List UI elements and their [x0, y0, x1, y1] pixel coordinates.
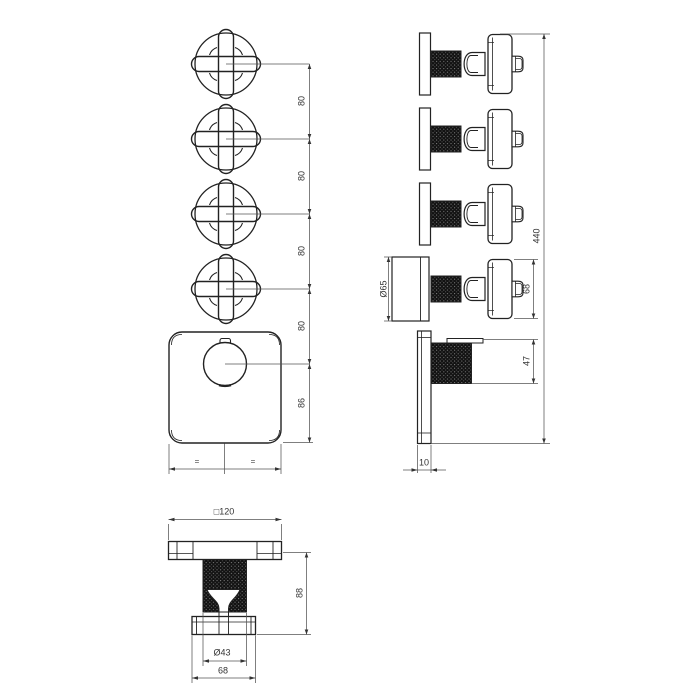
- dim-spacing-2: 80: [298, 171, 307, 181]
- cross-handle-3-side: [431, 185, 523, 244]
- dim-handle-height: 68: [523, 284, 532, 294]
- dim-plate-size: □120: [214, 508, 234, 517]
- technical-drawing-canvas: 80 80 80 80 86 = = Ø65 68 47 440 10 □120…: [0, 0, 700, 700]
- cross-handle-bottom: [192, 612, 256, 635]
- dim-knob-height: 47: [523, 356, 532, 366]
- dim-center-to-bottom: 86: [298, 398, 307, 408]
- cross-handle-1-side: [431, 35, 523, 94]
- bottom-view: [169, 542, 282, 635]
- knurled-hub-bottom: [203, 560, 247, 613]
- dim-rosette-diameter: Ø65: [380, 280, 389, 297]
- rosette-1-side: [420, 33, 431, 95]
- thermostat-knob-side: [431, 339, 483, 384]
- dim-depth: 88: [296, 588, 305, 598]
- cross-handle-2-side: [431, 110, 523, 169]
- dim-spacing-3: 80: [298, 246, 307, 256]
- dim-total-height: 440: [533, 228, 542, 243]
- dim-equal-right: =: [251, 458, 256, 466]
- side-view: [392, 33, 523, 444]
- dim-plate-thickness: 10: [419, 459, 429, 468]
- wall-plate-front: [169, 332, 281, 443]
- drawing-svg: [0, 0, 700, 700]
- knob-bottom-mark: [219, 385, 231, 386]
- cross-handle-4-side: [431, 260, 523, 319]
- knob-tab-side: [447, 339, 483, 344]
- wall-plate-side: [418, 331, 432, 444]
- rosette-3-side: [420, 183, 431, 245]
- dim-equal-left: =: [195, 458, 200, 466]
- dim-spacing-4: 80: [298, 321, 307, 331]
- dim-handle-width: 68: [218, 667, 228, 676]
- dim-spacing-1: 80: [298, 96, 307, 106]
- rosette-4-side: [392, 257, 429, 321]
- front-view: [169, 30, 281, 444]
- rosette-2-side: [420, 108, 431, 170]
- dim-hub-diameter: Ø43: [213, 649, 230, 658]
- wall-plate-bottom: [169, 542, 282, 560]
- handle-bar-bottom: [192, 617, 256, 635]
